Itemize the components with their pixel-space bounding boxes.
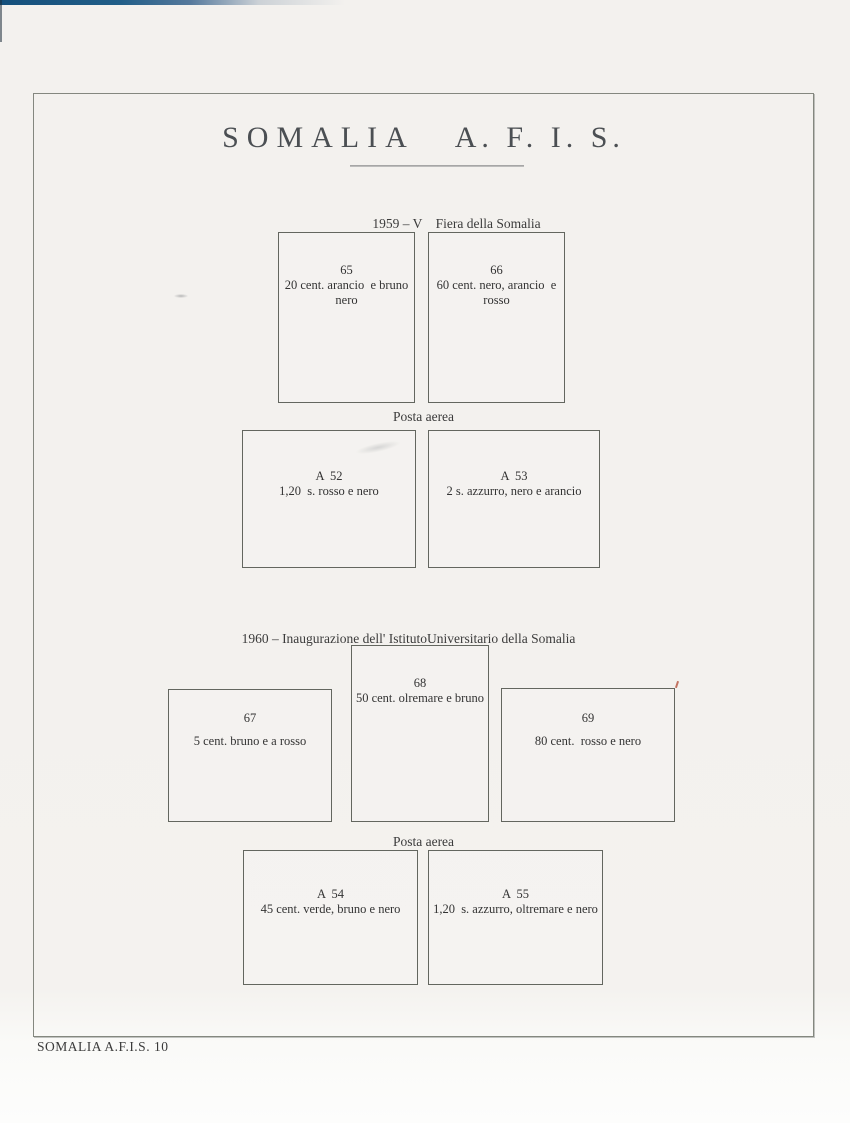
stamp-description-line1: 20 cent. arancio e bruno xyxy=(279,278,414,293)
page-title: SOMALIA A. F. I. S. xyxy=(34,121,813,155)
stamp-box-a52: A 52 1,20 s. rosso e nero xyxy=(242,430,416,568)
stamp-number: 66 xyxy=(429,263,564,278)
scan-left-edge-mark xyxy=(0,0,2,42)
stamp-description-line1: 60 cent. nero, arancio e xyxy=(429,278,564,293)
posta-aerea-heading-2: Posta aerea xyxy=(34,834,813,850)
stamp-description-line1: 45 cent. verde, bruno e nero xyxy=(244,902,417,917)
stamp-box-65: 65 20 cent. arancio e bruno nero xyxy=(278,232,415,403)
stamp-number: A 52 xyxy=(243,469,415,484)
stamp-number: A 54 xyxy=(244,887,417,902)
stamp-box-a55: A 55 1,20 s. azzurro, oltremare e nero xyxy=(428,850,603,985)
stamp-box-68: 68 50 cent. olremare e bruno xyxy=(351,645,489,822)
stamp-description-line2: rosso xyxy=(429,293,564,308)
stamp-box-67: 67 5 cent. bruno e a rosso xyxy=(168,689,332,822)
posta-aerea-heading-1: Posta aerea xyxy=(34,409,813,425)
scan-blue-strip xyxy=(0,0,345,5)
stamp-description-line1: 1,20 s. azzurro, oltremare e nero xyxy=(429,902,602,917)
page-footer-label: SOMALIA A.F.I.S. 10 xyxy=(37,1039,168,1055)
stamp-description-line1: 50 cent. olremare e bruno xyxy=(352,691,488,706)
album-page-scan: { "page": { "title_word1": "SOMALIA", "t… xyxy=(0,0,850,1123)
stamp-description-line1: 2 s. azzurro, nero e arancio xyxy=(429,484,599,499)
title-underline xyxy=(350,165,524,167)
stamp-box-66: 66 60 cent. nero, arancio e rosso xyxy=(428,232,565,403)
stamp-number: A 53 xyxy=(429,469,599,484)
stamp-number: 67 xyxy=(169,711,331,726)
stamp-number: 68 xyxy=(352,676,488,691)
stamp-box-69: 69 80 cent. rosso e nero xyxy=(501,688,675,822)
page-title-afis: A. F. I. S. xyxy=(455,121,625,155)
page-title-somalia: SOMALIA xyxy=(222,121,415,155)
stamp-number: 65 xyxy=(279,263,414,278)
stamp-description-line2: nero xyxy=(279,293,414,308)
stamp-box-a54: A 54 45 cent. verde, bruno e nero xyxy=(243,850,418,985)
stamp-box-a53: A 53 2 s. azzurro, nero e arancio xyxy=(428,430,600,568)
stamp-description-line1: 1,20 s. rosso e nero xyxy=(243,484,415,499)
section-heading-1959: 1959 – V Fiera della Somalia xyxy=(34,216,813,232)
stamp-number: A 55 xyxy=(429,887,602,902)
page-frame: SOMALIA A. F. I. S. 1959 – V Fiera della… xyxy=(33,93,814,1037)
stamp-description-line1: 5 cent. bruno e a rosso xyxy=(169,734,331,749)
stamp-number: 69 xyxy=(502,711,674,726)
stamp-description-line1: 80 cent. rosso e nero xyxy=(502,734,674,749)
